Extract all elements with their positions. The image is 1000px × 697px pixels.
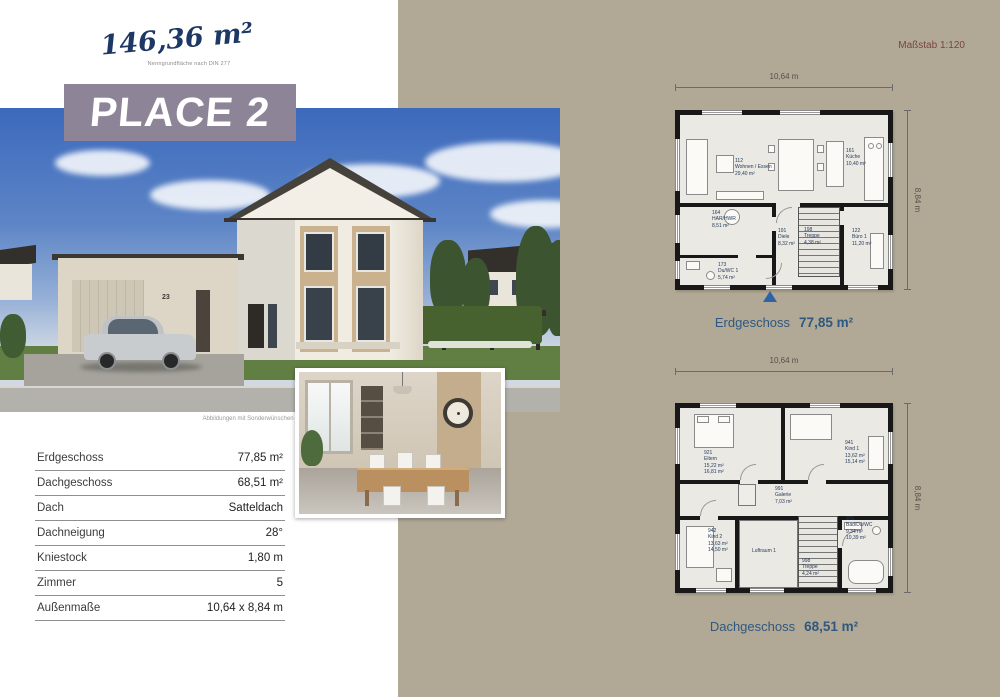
area-note: Nenngrundfläche nach DIN 277	[128, 61, 250, 67]
door-swing	[740, 464, 756, 480]
room-area: 7,03 m²	[775, 499, 792, 505]
spec-value: 1,80 m	[248, 552, 283, 564]
window	[675, 261, 680, 279]
dg-width-dimension: 10,64 m	[675, 356, 893, 365]
eg-caption-label: Erdgeschoss	[715, 315, 790, 330]
wall	[840, 203, 844, 211]
eg-width-dimension-line	[675, 87, 893, 88]
spec-value: Satteldach	[229, 502, 283, 514]
spec-value: 5	[277, 577, 283, 589]
door-side-window	[268, 304, 277, 348]
window	[888, 235, 893, 269]
room-label-treppe-dg: 998 Treppe 4,24 m²	[802, 558, 819, 577]
wall	[781, 408, 785, 480]
main-house-gable	[233, 168, 427, 222]
spec-label: Zimmer	[37, 577, 76, 589]
spec-label: Außenmaße	[37, 602, 100, 614]
upper-window	[304, 232, 334, 272]
room-label-buero: 122 Büro 1 11,20 m²	[852, 228, 871, 247]
spec-row: Erdgeschoss 77,85 m²	[35, 446, 285, 471]
chair	[817, 145, 824, 153]
window	[696, 588, 726, 593]
spec-row: Dachneigung 28°	[35, 521, 285, 546]
room-label-wohnen-essen: 112 Wohnen / Essen 29,40 m²	[735, 158, 772, 177]
room-name: Luftraum 1	[752, 548, 776, 554]
garage-side-door	[196, 290, 210, 352]
bathtub	[848, 560, 884, 584]
flower-bed	[428, 341, 532, 348]
window	[702, 110, 742, 115]
room-label-luftraum: Luftraum 1	[752, 548, 776, 554]
hedge	[420, 306, 542, 344]
spec-value: 10,64 x 8,84 m	[207, 602, 283, 614]
desk	[870, 233, 884, 269]
room-label-treppe: 198 Treppe 4,38 m²	[804, 227, 821, 246]
wall	[680, 203, 775, 207]
dg-height-dimension: 8,84 m	[913, 476, 922, 520]
spec-row: Dach Satteldach	[35, 496, 285, 521]
window	[888, 432, 893, 464]
wall	[838, 548, 842, 588]
room-label-diele: 191 Diele 8,32 m²	[778, 228, 795, 247]
desk	[716, 568, 732, 582]
window	[675, 215, 680, 243]
room-label-kind2: 942 Kind 2 13,63 m² 14,50 m²	[708, 528, 728, 553]
front-door	[248, 304, 264, 348]
spec-row: Zimmer 5	[35, 571, 285, 596]
wall	[826, 480, 888, 484]
window	[888, 548, 893, 576]
terrace-base	[296, 342, 400, 349]
bed	[790, 414, 832, 440]
spec-label: Dachgeschoss	[37, 477, 112, 489]
room-area2: 14,50 m²	[708, 547, 728, 553]
scale-label: Maßstab 1:120	[860, 40, 965, 51]
interior-plant	[301, 430, 323, 466]
staircase	[798, 516, 838, 588]
room-area: 8,51 m²	[712, 223, 736, 229]
tree	[430, 240, 466, 316]
wardrobe	[868, 436, 884, 470]
room-area: 13,63 m²	[708, 541, 728, 547]
kitchen-island	[826, 141, 844, 187]
car-wheel	[162, 352, 180, 370]
toilet	[706, 271, 715, 280]
sofa	[686, 139, 708, 195]
eg-width-dimension: 10,64 m	[675, 72, 893, 81]
room-name: HAR/HWR	[712, 216, 736, 222]
room-name: Galerie	[775, 492, 792, 498]
wall	[756, 255, 772, 258]
room-label-galerie: 991 Galerie 7,03 m²	[775, 486, 792, 505]
window	[675, 139, 680, 191]
coffee-table	[716, 155, 734, 173]
room-area: 29,40 m²	[735, 171, 772, 177]
door-swing	[776, 207, 792, 223]
background-house-wall	[0, 264, 32, 300]
spec-value: 68,51 m²	[238, 477, 283, 489]
room-name: Treppe	[802, 564, 819, 570]
room-area: 10,40 m²	[846, 161, 866, 167]
wall	[680, 516, 700, 520]
floorplan-erdgeschoss: 112 Wohnen / Essen 29,40 m² 161 Küche 10…	[675, 110, 893, 290]
wall-clock	[443, 398, 473, 428]
dining-chair	[383, 486, 401, 506]
floorplan-dachgeschoss: 921 Eltern 15,22 m² 16,81 m² 941 Kind 1 …	[675, 403, 893, 593]
table-leg	[455, 490, 459, 506]
closet	[738, 484, 756, 506]
dining-table	[357, 468, 469, 492]
eg-caption: Erdgeschoss77,85 m²	[675, 314, 893, 332]
door-swing	[808, 464, 824, 480]
door-swing	[766, 263, 782, 279]
table-leg	[365, 490, 369, 506]
car-wheel	[98, 352, 116, 370]
spec-value: 28°	[266, 527, 283, 539]
spec-row: Außenmaße 10,64 x 8,84 m	[35, 596, 285, 621]
interior-photo	[295, 368, 505, 518]
pendant-lamp	[393, 386, 412, 394]
room-area: 5,74 m²	[718, 275, 738, 281]
room-area: 15,22 m²	[704, 463, 724, 469]
brochure-page: 146,36 m² Nenngrundfläche nach DIN 277 P…	[0, 0, 1000, 697]
room-area: 8,32 m²	[778, 241, 795, 247]
spec-label: Erdgeschoss	[37, 452, 103, 464]
window	[675, 534, 680, 570]
chair	[817, 163, 824, 171]
dining-chair	[427, 486, 445, 506]
eg-height-dimension-line	[907, 110, 908, 290]
spec-label: Dachneigung	[37, 527, 105, 539]
dg-caption-area: 68,51 m²	[804, 619, 858, 634]
eg-height-dimension: 8,84 m	[913, 178, 922, 222]
room-area: 11,20 m²	[852, 241, 871, 247]
toilet	[872, 526, 881, 535]
spec-value: 77,85 m²	[238, 452, 283, 464]
window	[888, 143, 893, 177]
cloud	[55, 150, 150, 176]
room-label-har-hwr: 164 HAR/HWR 8,51 m²	[712, 210, 736, 229]
door-swing	[700, 500, 716, 516]
wall	[840, 225, 844, 285]
room-area: 13,62 m²	[845, 453, 865, 459]
main-house-shadow-side	[237, 220, 295, 360]
pillow	[718, 416, 730, 423]
model-title: PLACE 2	[88, 89, 272, 136]
room-label-bad: 971 Bad/Du/WC 9,34 m² 10,39 m²	[846, 516, 872, 541]
wall	[680, 255, 738, 258]
hob-ring	[868, 143, 874, 149]
parked-car	[84, 316, 196, 372]
spec-label: Dach	[37, 502, 64, 514]
dining-table	[778, 139, 814, 191]
room-area2: 15,14 m²	[845, 459, 865, 465]
room-label-du-wc: 173 Du/WC 1 5,74 m²	[718, 262, 738, 281]
room-label-kueche: 161 Küche 10,40 m²	[846, 148, 866, 167]
wall	[680, 480, 740, 484]
window	[675, 428, 680, 464]
interior-shelf	[361, 386, 383, 450]
pillow	[697, 416, 709, 423]
dg-caption-label: Dachgeschoss	[710, 619, 795, 634]
room-name: Wohnen / Essen	[735, 164, 772, 170]
window	[750, 588, 784, 593]
window	[848, 588, 876, 593]
dg-caption: Dachgeschoss68,51 m²	[675, 618, 893, 636]
window	[848, 285, 878, 290]
entrance-door	[766, 285, 792, 290]
room-label-eltern: 921 Eltern 15,22 m² 16,81 m²	[704, 450, 724, 475]
room-name: Bad/Du/WC	[846, 522, 872, 528]
spec-row: Dachgeschoss 68,51 m²	[35, 471, 285, 496]
tree	[545, 240, 560, 336]
hob-ring	[876, 143, 882, 149]
wall	[838, 520, 842, 530]
lower-window	[304, 286, 334, 342]
room-label-kind1: 941 Kind 1 13,62 m² 15,14 m²	[845, 440, 865, 465]
wall	[758, 480, 808, 484]
sink	[686, 261, 700, 270]
bush	[0, 314, 26, 358]
model-title-box: PLACE 2	[64, 84, 296, 141]
dg-height-dimension-line	[907, 403, 908, 593]
sideboard	[716, 191, 764, 200]
eg-caption-area: 77,85 m²	[799, 315, 853, 330]
spec-label: Kniestock	[37, 552, 87, 564]
spec-table: Erdgeschoss 77,85 m² Dachgeschoss 68,51 …	[35, 446, 285, 621]
spec-row: Kniestock 1,80 m	[35, 546, 285, 571]
room-area: 4,38 m²	[804, 240, 821, 246]
house-photo: 23	[0, 108, 560, 412]
window	[780, 110, 820, 115]
window	[810, 403, 840, 408]
total-area-handwritten: 146,36 m²	[91, 17, 263, 63]
wall	[772, 203, 776, 217]
room-name: Treppe	[804, 233, 821, 239]
entrance-arrow	[763, 291, 777, 302]
house-number: 23	[162, 294, 170, 301]
room-area2: 10,39 m²	[846, 535, 872, 541]
room-name: Du/WC 1	[718, 268, 738, 274]
room-area2: 16,81 m²	[704, 469, 724, 475]
lower-window	[356, 286, 386, 342]
cloud	[490, 200, 560, 228]
dg-width-dimension-line	[675, 371, 893, 372]
window	[704, 285, 730, 290]
cloud	[425, 142, 560, 182]
window	[700, 403, 736, 408]
room-area: 4,24 m²	[802, 571, 819, 577]
upper-window	[356, 232, 386, 272]
chair	[768, 145, 775, 153]
